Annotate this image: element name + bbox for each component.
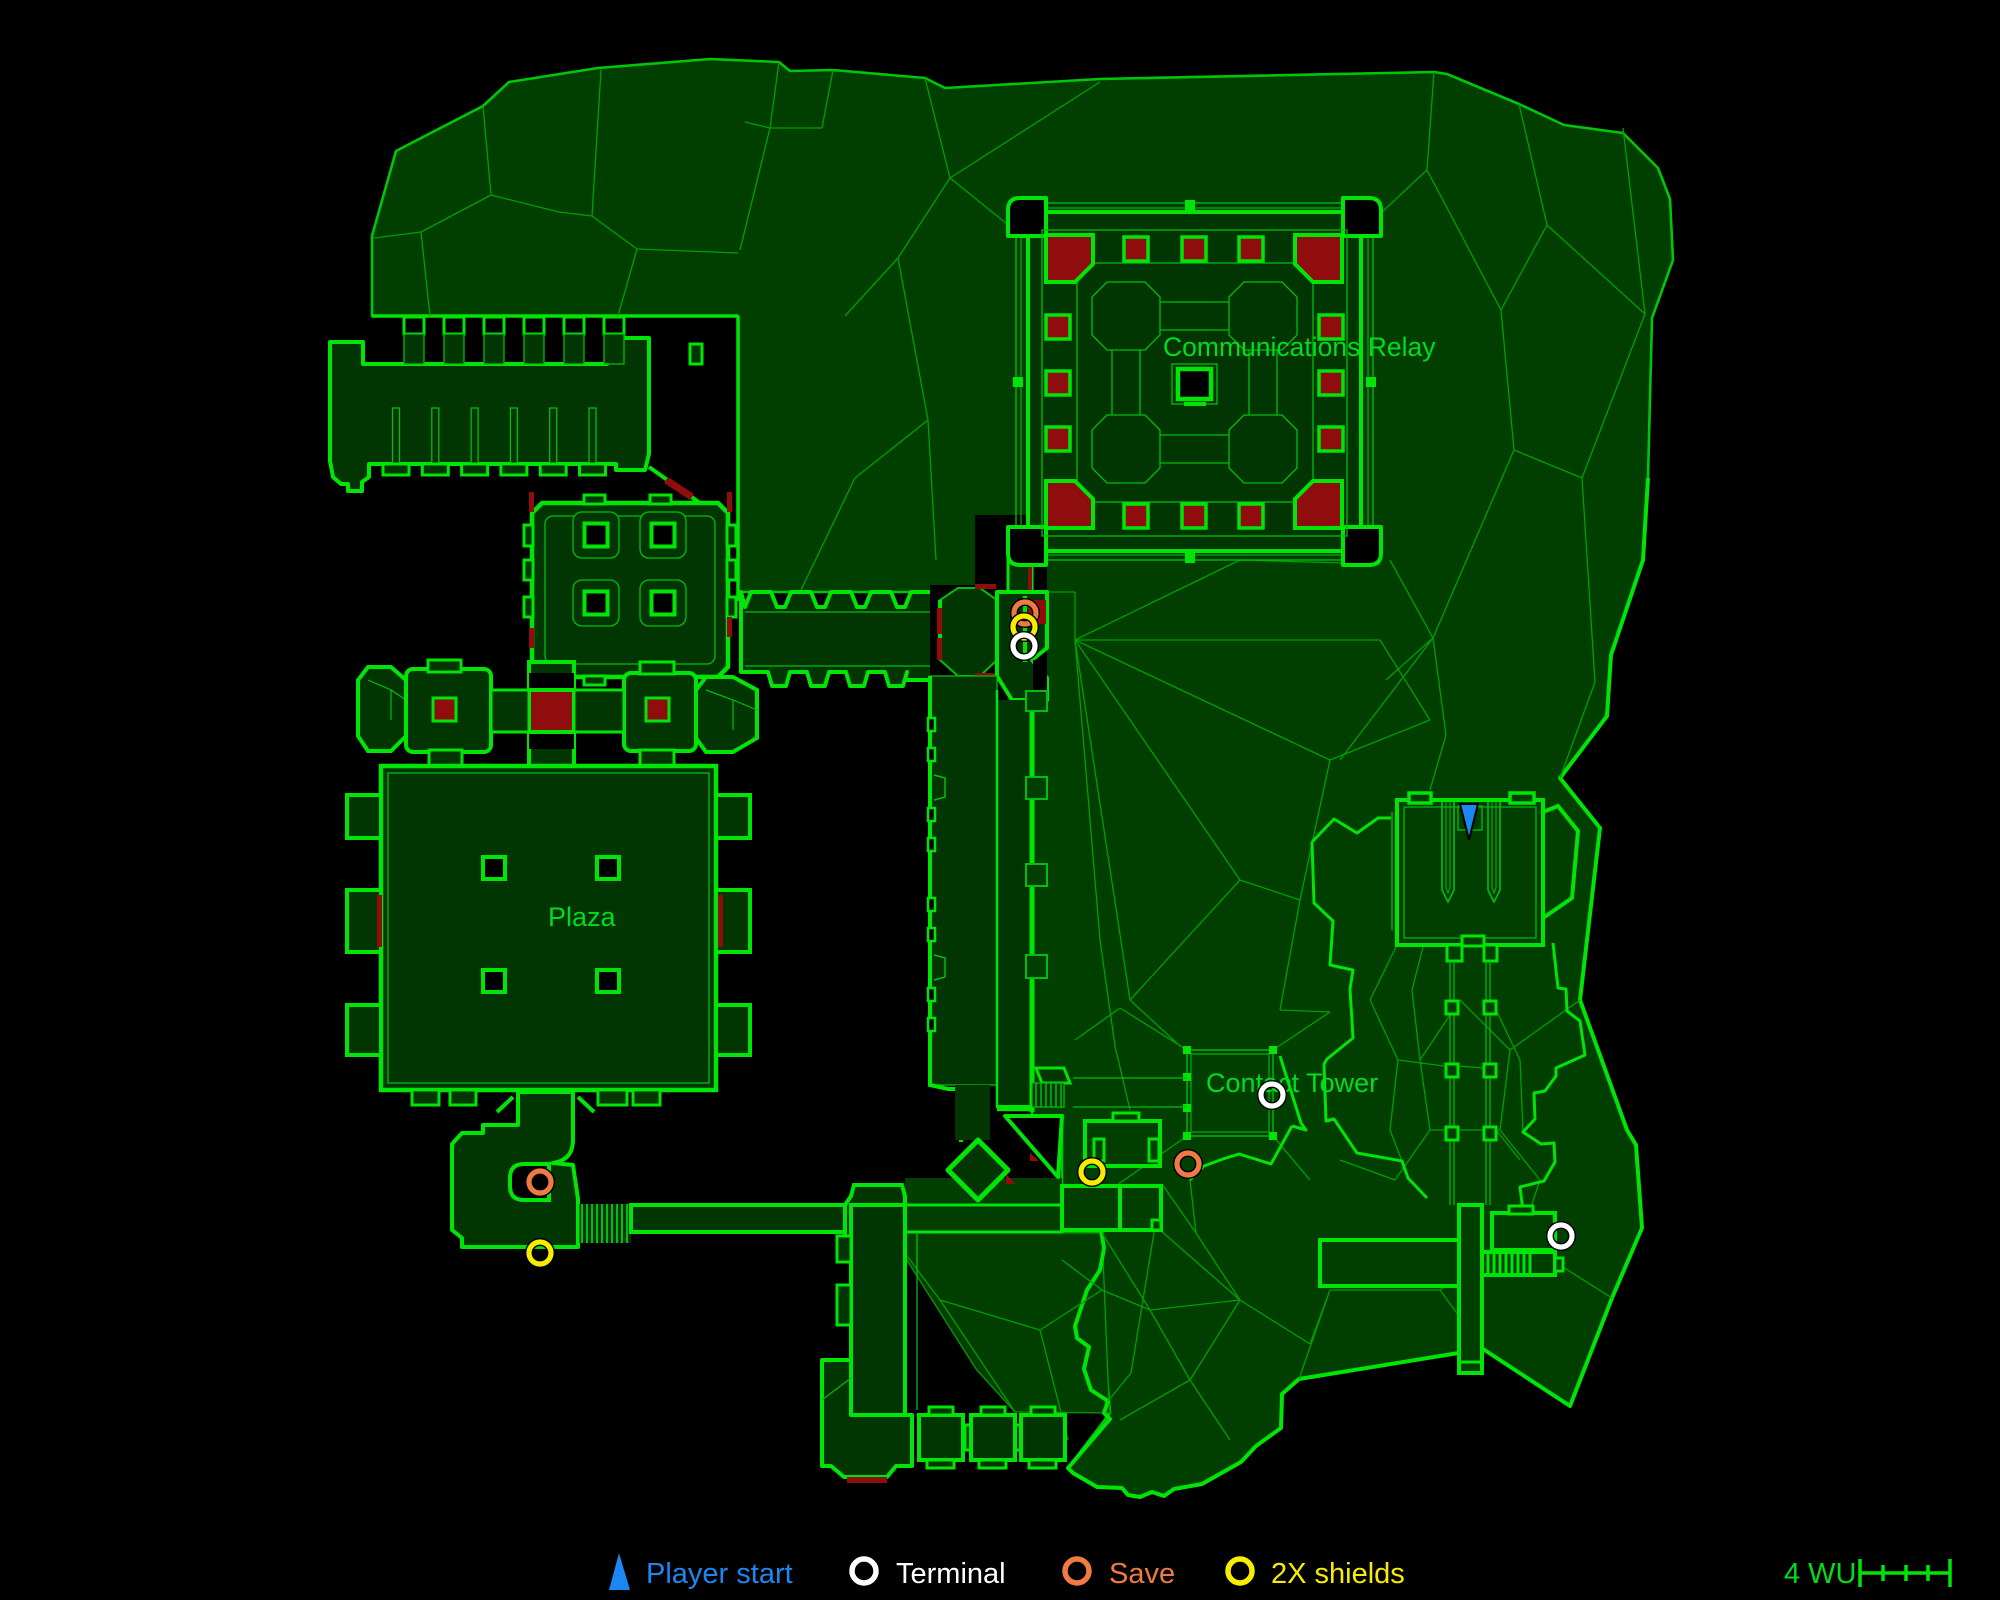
svg-text:Contact Tower: Contact Tower xyxy=(1206,1068,1378,1098)
svg-text:Save: Save xyxy=(1109,1558,1175,1590)
svg-text:Communications Relay: Communications Relay xyxy=(1163,332,1436,362)
svg-text:4 WU: 4 WU xyxy=(1784,1558,1857,1590)
svg-text:Player start: Player start xyxy=(646,1558,793,1590)
svg-text:Plaza: Plaza xyxy=(548,902,617,932)
svg-text:Terminal: Terminal xyxy=(896,1558,1006,1590)
svg-text:2X shields: 2X shields xyxy=(1271,1558,1405,1590)
